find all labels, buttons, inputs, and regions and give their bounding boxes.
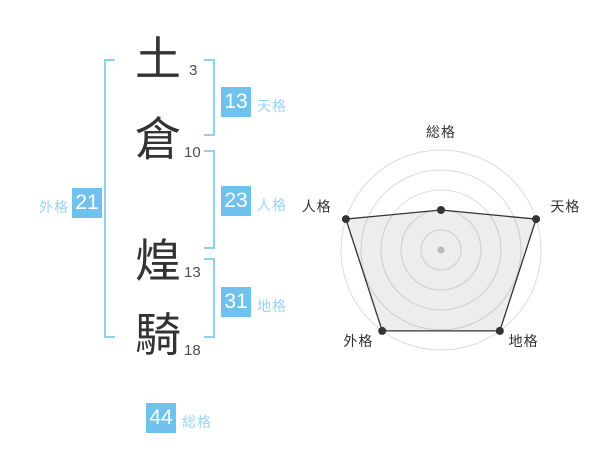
chikaku-label: 地格 — [257, 296, 287, 316]
radar-data-point — [532, 215, 540, 223]
radar-data-point — [342, 215, 350, 223]
given-char-1-strokes: 13 — [184, 264, 201, 281]
given-char-1: 煌 — [135, 238, 181, 284]
radar-axis-label: 地格 — [509, 333, 539, 349]
tenkaku-label: 天格 — [257, 96, 287, 116]
jinkaku-label: 人格 — [257, 195, 287, 215]
given-char-2: 騎 — [135, 312, 181, 358]
soukaku-label: 総格 — [182, 412, 212, 432]
surname-char-1-strokes: 3 — [189, 62, 197, 79]
surname-char-1: 土 — [135, 36, 181, 82]
chikaku-value-badge: 31 — [221, 287, 251, 317]
radar-data-point — [378, 327, 386, 335]
name-fortune-panel: 土 3 倉 10 煌 13 騎 18 13 天格 23 人格 31 地格 21 … — [0, 0, 600, 470]
gaikaku-label: 外格 — [39, 197, 69, 217]
soukaku-value-badge: 44 — [146, 403, 176, 433]
radar-data-polygon — [346, 210, 536, 331]
chikaku-bracket — [204, 258, 215, 338]
radar-axis-label: 総格 — [426, 124, 456, 140]
gaikaku-bracket — [104, 59, 115, 338]
fortune-radar-chart: 総格天格地格外格人格 — [290, 110, 592, 370]
surname-char-2-strokes: 10 — [184, 144, 201, 161]
jinkaku-bracket — [204, 150, 215, 249]
radar-data-point — [496, 327, 504, 335]
radar-axis-label: 人格 — [302, 199, 332, 215]
gaikaku-value-badge: 21 — [72, 188, 102, 218]
radar-data-point — [437, 206, 445, 214]
surname-char-2: 倉 — [135, 116, 181, 162]
jinkaku-value-badge: 23 — [221, 186, 251, 216]
tenkaku-bracket — [204, 59, 215, 136]
radar-axis-label: 天格 — [550, 199, 580, 215]
radar-axis-label: 外格 — [343, 333, 373, 349]
given-char-2-strokes: 18 — [184, 342, 201, 359]
tenkaku-value-badge: 13 — [221, 87, 251, 117]
